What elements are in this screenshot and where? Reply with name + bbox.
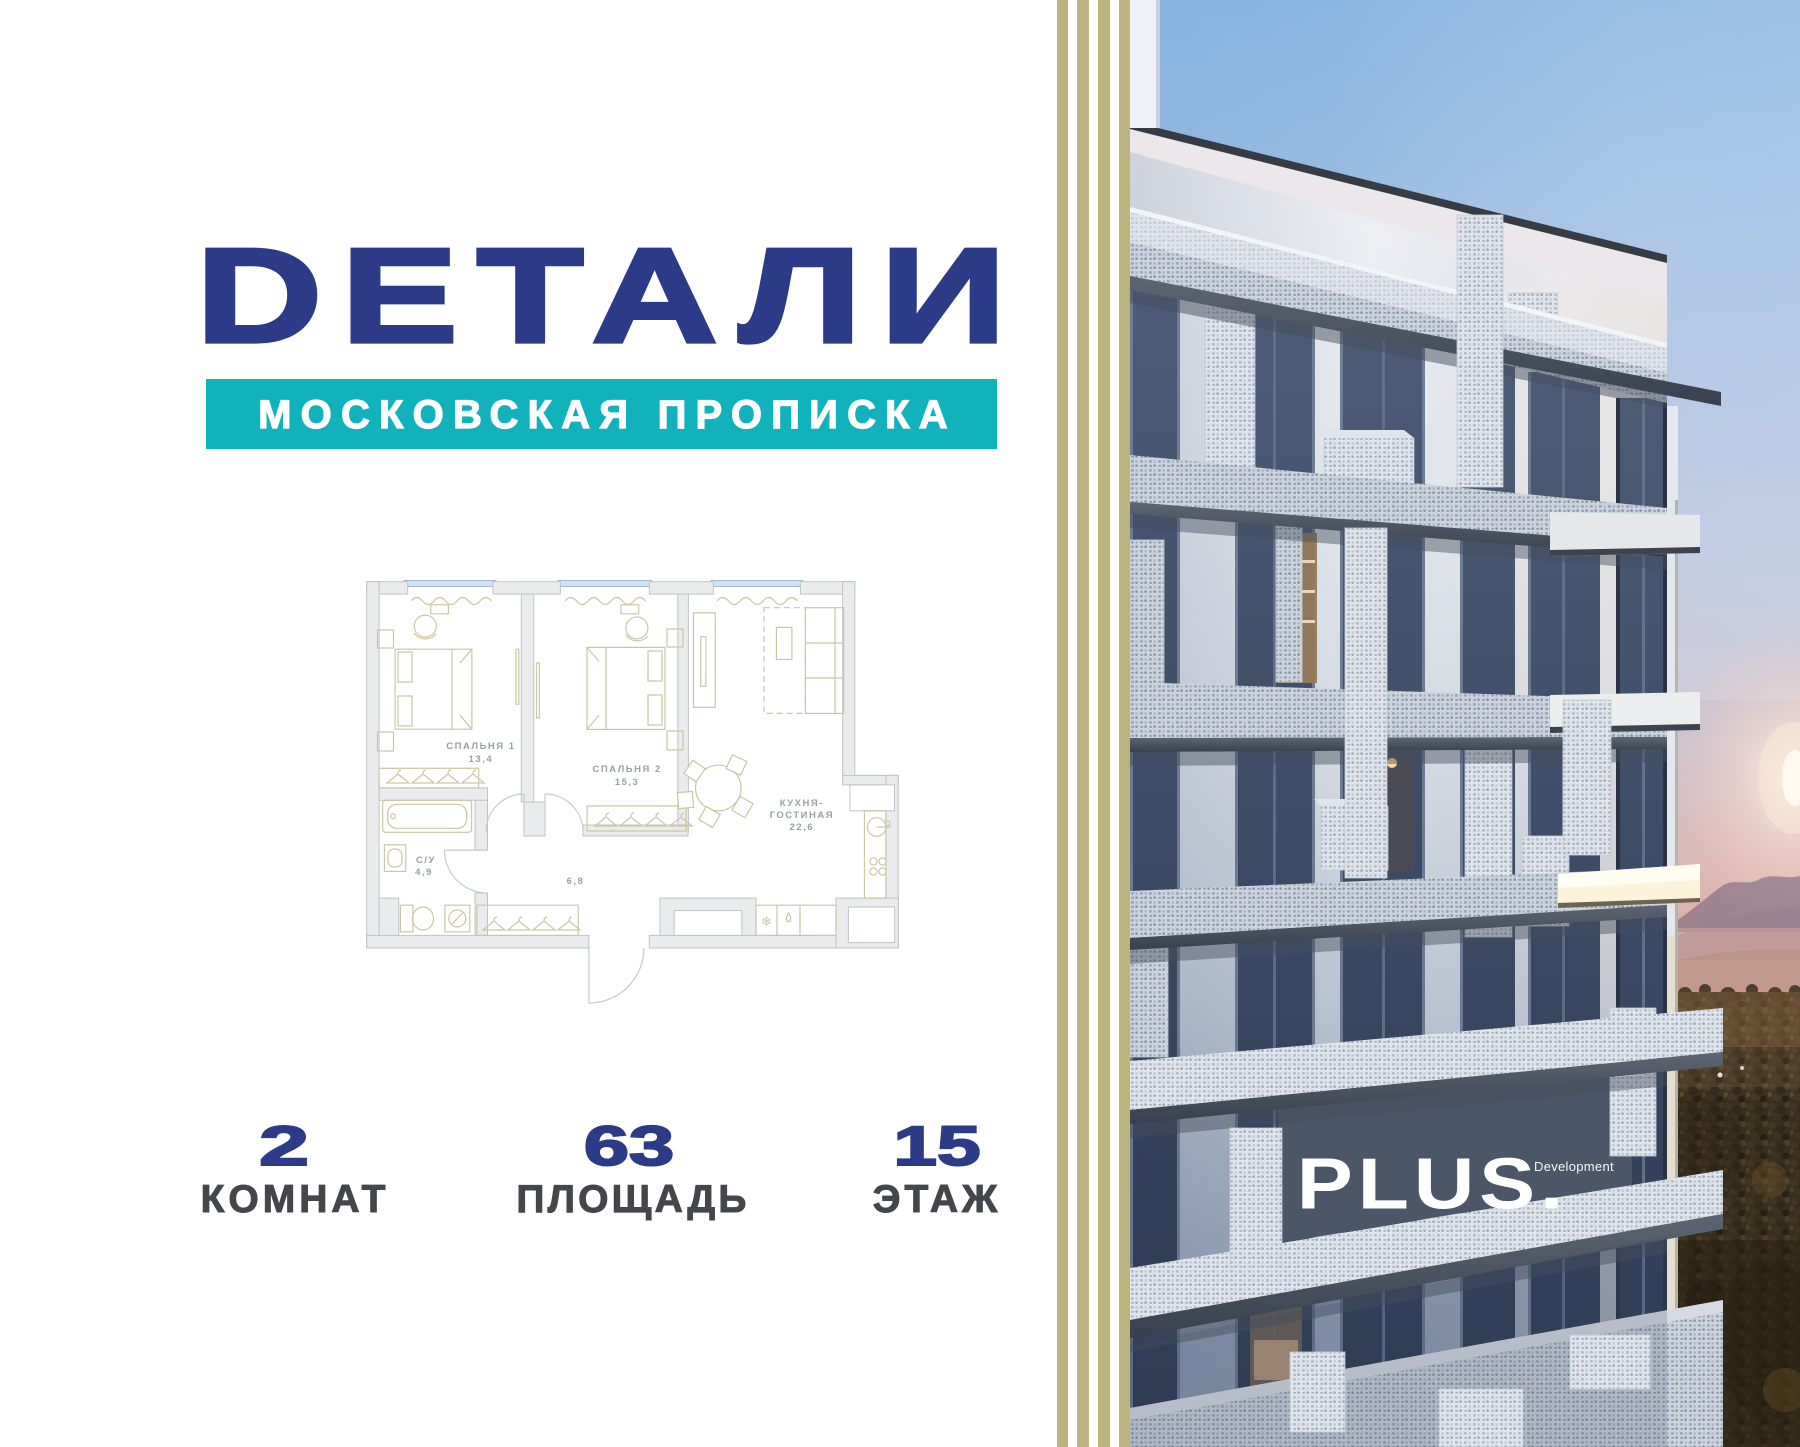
svg-text:КУХНЯ-: КУХНЯ- bbox=[780, 798, 824, 809]
svg-text:СПАЛЬНЯ 1: СПАЛЬНЯ 1 bbox=[446, 741, 515, 752]
svg-text:6,8: 6,8 bbox=[567, 876, 585, 887]
svg-text:СПАЛЬНЯ 2: СПАЛЬНЯ 2 bbox=[592, 764, 661, 775]
svg-text:С/У: С/У bbox=[416, 855, 436, 866]
svg-text:PLUS.: PLUS. bbox=[1297, 1143, 1568, 1225]
svg-text:ГОСТИНАЯ: ГОСТИНАЯ bbox=[770, 810, 834, 821]
svg-text:22,6: 22,6 bbox=[790, 822, 815, 833]
svg-text:❄: ❄ bbox=[761, 914, 772, 929]
svg-text:4,9: 4,9 bbox=[415, 867, 433, 878]
svg-text:13,4: 13,4 bbox=[469, 754, 494, 765]
svg-text:Development: Development bbox=[1534, 1159, 1614, 1174]
svg-text:15,3: 15,3 bbox=[615, 777, 640, 788]
